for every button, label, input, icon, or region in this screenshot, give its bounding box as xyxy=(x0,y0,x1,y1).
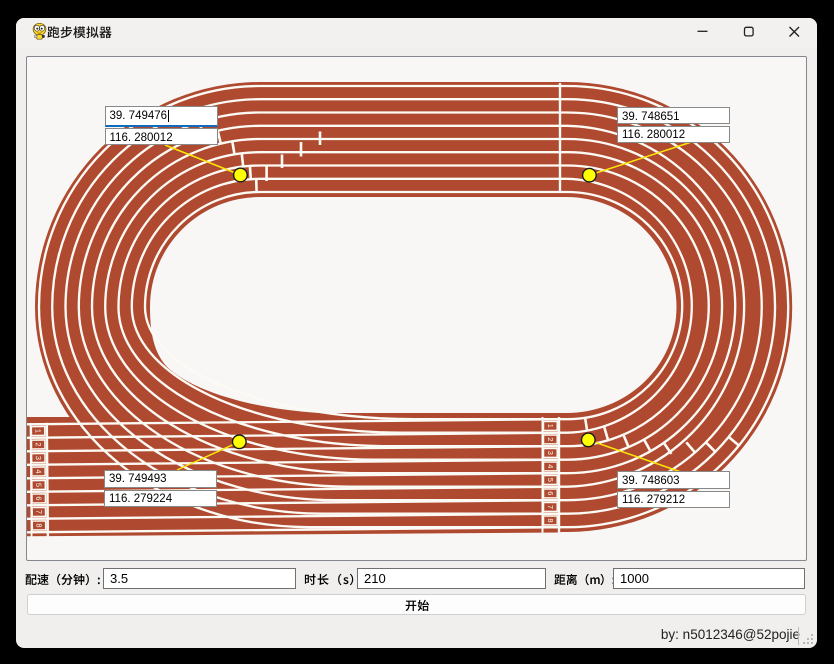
svg-text:3: 3 xyxy=(34,456,43,460)
svg-text:3: 3 xyxy=(546,451,555,455)
svg-text:6: 6 xyxy=(34,496,43,500)
svg-text:7: 7 xyxy=(34,510,43,514)
svg-text:6: 6 xyxy=(546,491,555,495)
svg-text:1: 1 xyxy=(34,429,43,433)
svg-text:8: 8 xyxy=(546,518,555,522)
svg-text:2: 2 xyxy=(34,442,43,446)
svg-text:1: 1 xyxy=(546,424,555,428)
svg-text:5: 5 xyxy=(34,483,43,487)
svg-text:2: 2 xyxy=(546,437,555,441)
svg-text:4: 4 xyxy=(546,464,555,468)
svg-text:8: 8 xyxy=(34,523,43,527)
svg-text:7: 7 xyxy=(546,505,555,509)
svg-text:4: 4 xyxy=(34,469,43,473)
svg-text:5: 5 xyxy=(546,478,555,482)
